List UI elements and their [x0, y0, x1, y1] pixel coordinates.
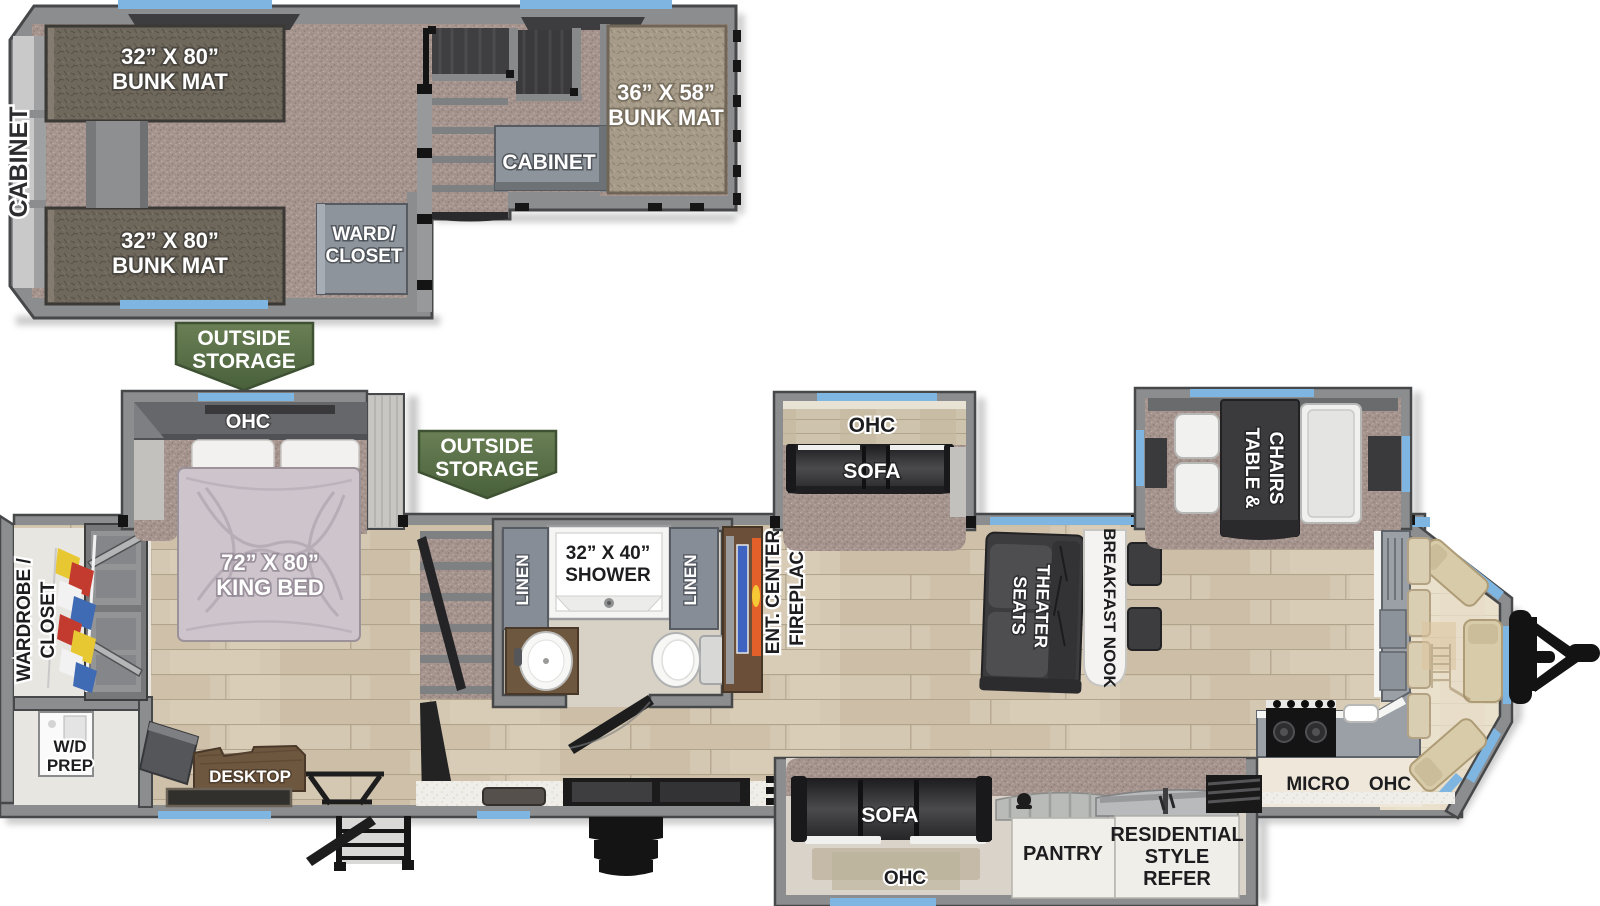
svg-text:BUNK MAT: BUNK MAT	[608, 105, 724, 130]
svg-text:OHC: OHC	[226, 411, 270, 433]
svg-text:OUTSIDE: OUTSIDE	[440, 435, 533, 458]
svg-text:CABINET: CABINET	[5, 106, 33, 217]
svg-text:CHAIRS: CHAIRS	[1265, 432, 1286, 505]
svg-text:SOFA: SOFA	[861, 804, 918, 827]
svg-text:LINEN: LINEN	[513, 555, 532, 606]
svg-text:SEATS: SEATS	[1008, 576, 1030, 635]
svg-text:PANTRY: PANTRY	[1023, 843, 1104, 865]
svg-text:BUNK MAT: BUNK MAT	[112, 253, 228, 278]
svg-text:STORAGE: STORAGE	[435, 458, 538, 481]
svg-text:LINEN: LINEN	[681, 555, 700, 606]
svg-text:OHC: OHC	[849, 414, 896, 437]
svg-text:WARD/: WARD/	[332, 224, 396, 245]
svg-text:RESIDENTIAL: RESIDENTIAL	[1110, 824, 1243, 846]
svg-text:THEATER: THEATER	[1031, 564, 1054, 648]
svg-text:KING BED: KING BED	[216, 575, 324, 600]
svg-text:36” X 58”: 36” X 58”	[617, 80, 715, 105]
svg-text:MICRO: MICRO	[1286, 774, 1349, 795]
svg-text:OHC: OHC	[1369, 774, 1412, 795]
svg-text:FIREPLACE: FIREPLACE	[787, 538, 808, 646]
svg-text:SHOWER: SHOWER	[565, 565, 651, 586]
svg-text:32” X 80”: 32” X 80”	[121, 228, 219, 253]
svg-text:72” X 80”: 72” X 80”	[221, 550, 319, 575]
svg-text:SOFA: SOFA	[843, 460, 900, 483]
svg-text:CLOSET: CLOSET	[38, 581, 59, 658]
svg-text:CABINET: CABINET	[502, 151, 596, 174]
svg-text:BREAKFAST NOOK: BREAKFAST NOOK	[1100, 528, 1119, 688]
svg-text:OHC: OHC	[884, 868, 927, 889]
svg-text:TABLE &: TABLE &	[1241, 428, 1262, 509]
svg-text:REFER: REFER	[1143, 868, 1211, 890]
svg-text:PREP: PREP	[47, 756, 93, 775]
svg-text:WARDROBE /: WARDROBE /	[14, 558, 35, 682]
svg-text:ENT. CENTER: ENT. CENTER	[763, 529, 784, 654]
svg-text:BUNK MAT: BUNK MAT	[112, 69, 228, 94]
svg-text:W/D: W/D	[53, 737, 86, 756]
svg-text:32” X 80”: 32” X 80”	[121, 44, 219, 69]
svg-text:CLOSET: CLOSET	[325, 246, 402, 267]
svg-text:DESKTOP: DESKTOP	[209, 767, 291, 786]
svg-text:STYLE: STYLE	[1145, 846, 1209, 868]
svg-text:OUTSIDE: OUTSIDE	[197, 327, 290, 350]
svg-text:32” X 40”: 32” X 40”	[566, 543, 651, 564]
svg-text:STORAGE: STORAGE	[192, 350, 295, 373]
